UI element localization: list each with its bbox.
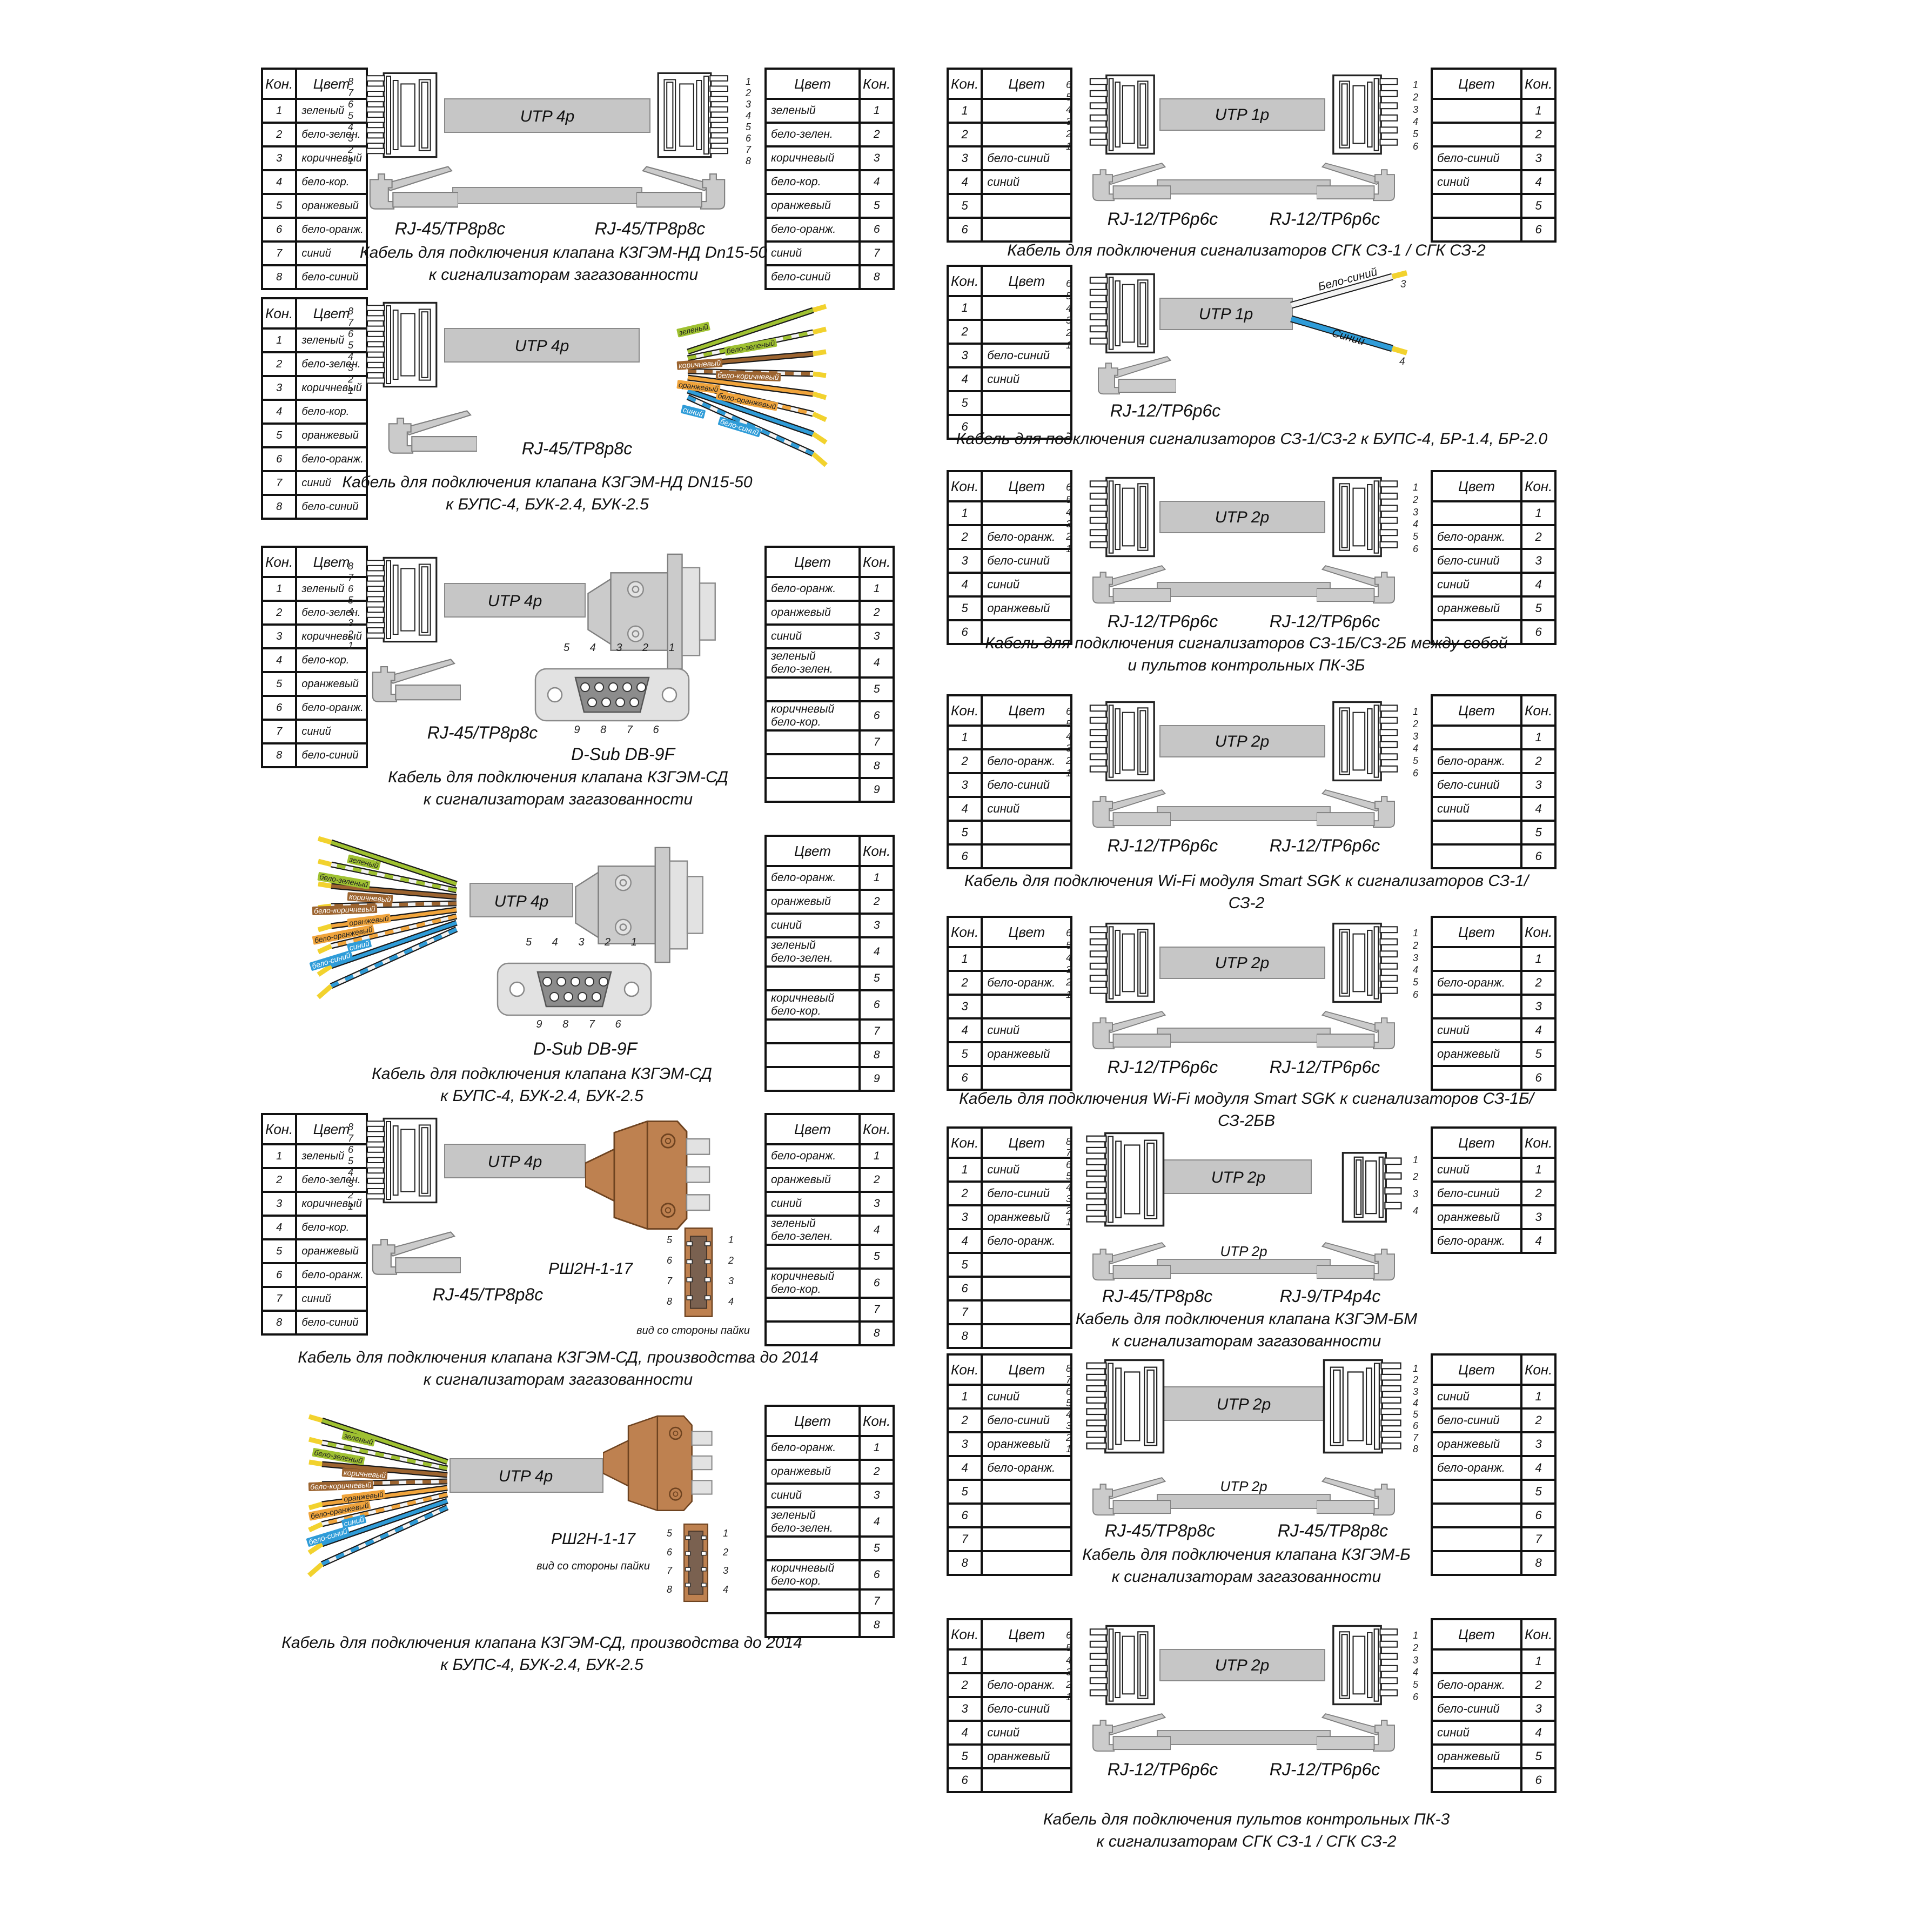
table-row: 5 — [766, 1245, 894, 1269]
pin-callouts-right: 12345678 — [741, 76, 756, 157]
table-row: бело-кор.4 — [766, 170, 894, 194]
pin-number: 1 — [728, 1235, 734, 1246]
table-cell: 5 — [860, 677, 894, 701]
table-cell: оранжевый — [1432, 1432, 1521, 1456]
pin-number: 6 — [1413, 544, 1418, 555]
pin-number: 3 — [1413, 1386, 1418, 1398]
table-row: 3оранжевый — [948, 1205, 1071, 1229]
table-cell: 2 — [1521, 1182, 1555, 1205]
table-cell: 7 — [262, 242, 296, 265]
rj12-plug-icon — [1090, 924, 1154, 1002]
table-cell: 4 — [262, 1216, 296, 1239]
pin-number: 7 — [746, 144, 751, 156]
diagram-caption: Кабель для подключения сигнализаторов СГ… — [947, 239, 1546, 261]
pin-table-left: Кон.Цвет123бело-синий4синий56 — [947, 265, 1072, 440]
table-row: 3бело-синий — [948, 1697, 1071, 1721]
pin-number: 3 — [1413, 1189, 1418, 1200]
table-row: оранжевый2 — [766, 1168, 894, 1192]
rj12-plug-icon — [1090, 478, 1154, 556]
table-row: оранжевый2 — [766, 1460, 894, 1484]
table-cell: бело-оранж. — [766, 1144, 860, 1168]
connector-label: RJ-45/TP8p8c — [396, 723, 569, 743]
connector-label: RJ-12/TP6p6c — [1084, 209, 1241, 229]
table-cell: 2 — [860, 123, 894, 146]
pin-table: ЦветКон.12бело-синий3синий456 — [1431, 68, 1557, 243]
table-cell: 7 — [860, 730, 894, 754]
table-row: синий4 — [1432, 1721, 1555, 1745]
rj45-plug-icon — [658, 73, 728, 157]
table-header-cell: Кон. — [860, 547, 894, 577]
rj12-plug-icon — [1090, 1626, 1154, 1705]
table-cell: 2 — [948, 1673, 982, 1697]
table-row: зеленый1 — [766, 99, 894, 123]
table-cell: 6 — [948, 1504, 982, 1527]
table-row: 1 — [948, 99, 1071, 123]
connector-label: RJ-12/TP6p6c — [1246, 1760, 1403, 1780]
diagram-caption: Кабель для подключения Wi-Fi модуля Smar… — [947, 1088, 1546, 1132]
table-cell — [766, 730, 860, 754]
table-cell: 1 — [948, 99, 982, 123]
table-cell: 1 — [1521, 1385, 1555, 1408]
pin-number: 4 — [1066, 731, 1071, 742]
table-row: 4бело-кор. — [262, 400, 367, 424]
table-row: 5 — [1432, 194, 1555, 218]
table-header-cell: Кон. — [262, 1114, 296, 1144]
rsh-connector-icon — [603, 1416, 712, 1511]
table-cell: 6 — [860, 1560, 894, 1589]
table-cell: 1 — [1521, 501, 1555, 525]
table-header-cell: Цвет — [766, 1114, 860, 1144]
table-cell: 3 — [948, 1205, 982, 1229]
table-cell: 7 — [860, 1589, 894, 1613]
table-cell: синий — [766, 625, 860, 648]
table-row: оранжевый5 — [766, 194, 894, 218]
table-cell: 3 — [948, 549, 982, 573]
connector-label: RJ-9/TP4p4c — [1249, 1286, 1411, 1306]
table-row: бело-оранж.4 — [1432, 1229, 1555, 1253]
cable-icon — [1157, 1028, 1330, 1042]
table-cell: 6 — [948, 844, 982, 868]
table-cell — [982, 947, 1071, 971]
connector-drawing: UTP 1p — [1082, 68, 1406, 207]
pin-number: 7 — [667, 1276, 672, 1287]
table-cell: 1 — [860, 99, 894, 123]
table-header-cell: Цвет — [982, 69, 1071, 99]
pin-table: ЦветКон.бело-оранж.1оранжевый2синий3зеле… — [764, 546, 895, 803]
table-header-cell: Кон. — [948, 69, 982, 99]
table-row: 6 — [948, 1277, 1071, 1300]
table-cell: 2 — [948, 525, 982, 549]
table-header-cell: Кон. — [1521, 69, 1555, 99]
table-cell: бело-оранж. — [1432, 971, 1521, 995]
table-cell — [982, 1504, 1071, 1527]
table-row: зеленый бело-зелен.4 — [766, 1216, 894, 1245]
table-row: бело-оранж.2 — [1432, 1673, 1555, 1697]
cable-icon — [1157, 1730, 1330, 1745]
table-header-cell: Цвет — [982, 266, 1071, 296]
pin-number: 3 — [1066, 743, 1071, 754]
table-cell: синий — [1432, 1158, 1521, 1182]
connector-label: RJ-45/TP8p8c — [1076, 1521, 1244, 1541]
table-header-cell: Кон. — [948, 695, 982, 726]
connector-drawing: UTP 4p — [353, 1113, 763, 1340]
table-cell: 4 — [948, 1721, 982, 1745]
table-cell: коричневый бело-кор. — [766, 1560, 860, 1589]
pin-number: 1 — [1413, 1155, 1418, 1166]
table-cell: 3 — [1521, 1205, 1555, 1229]
table-cell — [1432, 218, 1521, 242]
diagram-L5: Кон.Цвет1зеленый2бело-зелен.3коричневый4… — [261, 1113, 882, 1388]
pin-number: 1 — [1066, 1692, 1071, 1703]
pin-number: 4 — [1413, 1667, 1418, 1678]
pin-number: 3 — [746, 99, 751, 110]
pin-callouts-left: 654321 — [1061, 482, 1076, 555]
pin-number: 2 — [723, 1547, 728, 1558]
table-header-cell: Цвет — [1432, 1128, 1521, 1158]
rj12-plug-icon — [1090, 274, 1154, 353]
table-cell: 2 — [262, 123, 296, 146]
table-cell: бело-синий — [982, 1182, 1071, 1205]
table-row: 1 — [1432, 1649, 1555, 1673]
pin-number: 2 — [746, 88, 751, 99]
table-cell: бело-оранж. — [1432, 1229, 1521, 1253]
svg-text:UTP 4p: UTP 4p — [488, 1153, 542, 1171]
table-row: 1 — [948, 296, 1071, 320]
rj12-plug-icon — [1333, 76, 1397, 154]
table-cell: 8 — [860, 1321, 894, 1345]
table-row: 6 — [948, 1066, 1071, 1090]
table-cell: 6 — [1521, 1768, 1555, 1792]
diagram-caption: Кабель для подключения сигнализаторов СЗ… — [947, 632, 1546, 676]
pin-callouts-right: 123456 — [1408, 706, 1423, 779]
table-cell: 5 — [1521, 1042, 1555, 1066]
diagram-caption: Кабель для подключения клапана КЗГЭМ-СД,… — [272, 1632, 812, 1676]
table-cell: 4 — [1521, 1229, 1555, 1253]
table-cell — [766, 1245, 860, 1269]
table-header-cell: Кон. — [262, 298, 296, 328]
table-row: синий3 — [766, 914, 894, 937]
pin-number: 1 — [1413, 1630, 1418, 1641]
table-header-cell: Цвет — [1432, 1619, 1521, 1649]
table-cell: бело-синий — [982, 1408, 1071, 1432]
table-header-cell: Кон. — [1521, 1619, 1555, 1649]
table-cell: бело-оранж. — [1432, 525, 1521, 549]
table-cell: 6 — [860, 218, 894, 242]
rsh-pin-callouts-right: 1234 — [723, 1235, 739, 1307]
diagram-R5: Кон.Цвет12бело-оранж.34синий5оранжевый6 … — [947, 916, 1546, 1116]
table-cell: 1 — [948, 296, 982, 320]
svg-text:UTP 1p: UTP 1p — [1215, 106, 1270, 124]
pin-number: 6 — [1066, 1386, 1071, 1398]
connector-label: RJ-45/TP8p8c — [1249, 1521, 1417, 1541]
table-header-cell: Цвет — [766, 836, 860, 866]
table-cell: 6 — [860, 701, 894, 730]
table-cell: бело-синий — [1432, 549, 1521, 573]
pin-number: 2 — [1066, 129, 1071, 140]
svg-text:UTP 2p: UTP 2p — [1217, 1396, 1271, 1413]
rsh-pin-callouts-right: 1234 — [718, 1528, 733, 1595]
diagram-caption: Кабель для подключения клапана КЗГЭМ-БМк… — [947, 1308, 1546, 1352]
rj45-plug-icon — [1324, 1360, 1401, 1452]
table-cell: 3 — [948, 146, 982, 170]
diagram-caption: Кабель для подключения пультов контрольн… — [947, 1808, 1546, 1853]
table-cell: 9 — [860, 778, 894, 802]
table-header-cell: Цвет — [766, 1406, 860, 1436]
pin-number: 3 — [728, 1276, 734, 1287]
table-row: 7синий — [262, 720, 367, 743]
table-row: 7синий — [262, 1287, 367, 1311]
table-row: оранжевый2 — [766, 890, 894, 914]
table-row: 3бело-синий — [948, 344, 1071, 367]
svg-text:UTP 2p: UTP 2p — [1215, 733, 1270, 750]
pin-number: 6 — [1066, 706, 1071, 717]
table-row: 6 — [1432, 1066, 1555, 1090]
table-row: синий4 — [1432, 1018, 1555, 1042]
table-row: 1синий — [948, 1385, 1071, 1408]
table-cell: 1 — [860, 1436, 894, 1460]
table-cell: 3 — [948, 1697, 982, 1721]
connector-drawing: UTP 4p — [353, 68, 742, 214]
table-cell: 3 — [262, 625, 296, 648]
pin-table-right: ЦветКон.1бело-оранж.23синий4оранжевый56 — [1431, 916, 1557, 1091]
pin-number: 1 — [1413, 706, 1418, 717]
table-row: 2 — [948, 123, 1071, 146]
table-header-cell: Цвет — [1432, 695, 1521, 726]
table-header-cell: Кон. — [860, 1406, 894, 1436]
table-cell: 5 — [1521, 1745, 1555, 1768]
pin-number: 5 — [746, 122, 751, 133]
table-row: 6бело-оранж. — [262, 1263, 367, 1287]
table-cell: бело-синий — [1432, 1182, 1521, 1205]
dsub-pin-numbers-bottom: 9 8 7 6 — [534, 1018, 632, 1031]
pin-number: 2 — [728, 1255, 734, 1266]
table-cell: бело-синий — [1432, 773, 1521, 797]
table-cell — [982, 1768, 1071, 1792]
pin-table: ЦветКон.синий1бело-синий2оранжевый3бело-… — [1431, 1126, 1557, 1254]
connector-drawing: UTP 2p UTP 2p — [1082, 1353, 1406, 1518]
table-cell: 3 — [860, 914, 894, 937]
table-cell: бело-оранж. — [1432, 1673, 1521, 1697]
pin-number: 2 — [1066, 977, 1071, 988]
table-cell: 4 — [948, 1456, 982, 1480]
pin-table-right: ЦветКон.бело-оранж.1оранжевый2синий3зеле… — [764, 546, 895, 803]
pin-number: 4 — [1066, 952, 1071, 964]
svg-text:UTP 2p: UTP 2p — [1220, 1243, 1267, 1259]
pin-number: 6 — [1413, 1692, 1418, 1703]
pin-table-right: ЦветКон.12бело-синий3синий456 — [1431, 68, 1557, 243]
table-row: бело-оранж.1 — [766, 866, 894, 890]
table-cell: синий — [982, 1721, 1071, 1745]
table-header-cell: Кон. — [948, 471, 982, 501]
pin-table-right: ЦветКон.синий1бело-синий2оранжевый3бело-… — [1431, 1353, 1557, 1576]
table-row: 3бело-синий — [948, 549, 1071, 573]
table-cell: 6 — [860, 1269, 894, 1298]
pin-number: 6 — [1066, 928, 1071, 939]
pin-table-left: Кон.Цвет12бело-оранж.3бело-синий4синий5о… — [947, 470, 1072, 645]
table-cell: 8 — [860, 1613, 894, 1637]
table-cell: 3 — [948, 344, 982, 367]
table-cell: бело-оранж. — [766, 866, 860, 890]
table-cell: бело-кор. — [766, 170, 860, 194]
table-cell: оранжевый — [982, 1432, 1071, 1456]
table-cell: бело-синий — [1432, 146, 1521, 170]
table-cell: 5 — [948, 1042, 982, 1066]
table-cell: 5 — [948, 596, 982, 620]
table-cell: 5 — [1521, 194, 1555, 218]
pin-number: 3 — [1066, 116, 1071, 128]
table-cell: зеленый бело-зелен. — [766, 937, 860, 967]
connector-label: D-Sub DB-9F — [504, 1039, 666, 1059]
pin-number: 4 — [1066, 104, 1071, 116]
pin-table: Кон.Цвет123бело-синий4синий56 — [947, 68, 1072, 243]
diagram-L3: Кон.Цвет1зеленый2бело-зелен.3коричневый4… — [261, 546, 882, 816]
pin-number: 4 — [1066, 1655, 1071, 1666]
pin-number: 5 — [1066, 1171, 1071, 1182]
rj-latch-icon — [1098, 357, 1176, 394]
table-cell: 3 — [262, 376, 296, 400]
table-row: 2бело-оранж. — [948, 971, 1071, 995]
table-row: 2 — [1432, 123, 1555, 146]
svg-text:Синий: Синий — [1331, 327, 1366, 348]
table-cell: 2 — [1521, 749, 1555, 773]
table-cell: зеленый бело-зелен. — [766, 1507, 860, 1537]
diagram-caption: Кабель для подключения сигнализаторов СЗ… — [947, 428, 1557, 450]
table-cell: 1 — [1521, 726, 1555, 749]
table-row: 6 — [1432, 1768, 1555, 1792]
table-cell: 6 — [948, 1277, 982, 1300]
pin-number: 5 — [667, 1235, 672, 1246]
rj9-plug-icon — [1343, 1153, 1401, 1222]
table-cell — [766, 1321, 860, 1345]
table-cell — [982, 1253, 1071, 1277]
svg-text:UTP 2p: UTP 2p — [1215, 954, 1270, 972]
table-cell: 3 — [262, 146, 296, 170]
pin-table: ЦветКон.1бело-оранж.2бело-синий3синий456 — [1431, 694, 1557, 869]
table-row: 4синий — [948, 797, 1071, 821]
table-cell: синий — [982, 1018, 1071, 1042]
table-cell: 7 — [262, 720, 296, 743]
pin-number: 6 — [1066, 482, 1071, 493]
pin-number: 3 — [1413, 1655, 1418, 1666]
pin-callouts-left: 654321 — [1061, 278, 1076, 351]
pin-number: 8 — [1066, 1136, 1071, 1148]
pin-callouts-left: 654321 — [1061, 928, 1076, 1001]
table-row: синий4 — [1432, 170, 1555, 194]
table-row: 4бело-кор. — [262, 170, 367, 194]
table-cell — [766, 1298, 860, 1321]
rsh-note: вид со стороны пайки — [520, 1560, 666, 1573]
connector-drawing: UTP 2p — [1082, 916, 1406, 1055]
table-cell: синий — [1432, 170, 1521, 194]
diagram-L6: UTP 4p зеленый бело-зеленый коричневый б… — [261, 1405, 882, 1680]
table-row: 6бело-оранж. — [262, 447, 367, 471]
connector-label: RJ-45/TP8p8c — [558, 219, 742, 239]
pin-table-left: Кон.Цвет123бело-синий4синий56 — [947, 68, 1072, 243]
table-cell: бело-оранж. — [982, 1673, 1071, 1697]
table-cell: 3 — [860, 625, 894, 648]
wiring-diagrams-page: Кон.Цвет1зеленый2бело-зелен.3коричневый4… — [0, 0, 1932, 1932]
table-row: 5 — [1432, 1480, 1555, 1504]
table-row: 2бело-оранж. — [948, 749, 1071, 773]
table-cell: 3 — [1521, 773, 1555, 797]
table-cell: 3 — [948, 1432, 982, 1456]
pin-number: 4 — [1066, 1409, 1071, 1420]
table-cell: синий — [1432, 797, 1521, 821]
table-cell: 9 — [860, 1067, 894, 1091]
table-row: коричневый бело-кор.6 — [766, 1560, 894, 1589]
pin-number: 1 — [1066, 340, 1071, 351]
pin-table: ЦветКон.1бело-оранж.23синий4оранжевый56 — [1431, 916, 1557, 1091]
table-row: 5 — [948, 391, 1071, 415]
table-cell: 6 — [262, 1263, 296, 1287]
table-cell: 5 — [860, 1537, 894, 1560]
table-cell: 4 — [860, 937, 894, 967]
connector-label: RJ-45/TP8p8c — [1071, 1286, 1244, 1306]
table-header-cell: Цвет — [982, 695, 1071, 726]
table-cell: 1 — [948, 947, 982, 971]
table-row: синий3 — [766, 1484, 894, 1507]
rj45-plug-icon — [1086, 1360, 1163, 1452]
pin-number: 4 — [1413, 116, 1418, 128]
pin-number: 3 — [1066, 519, 1071, 530]
table-cell: бело-синий — [982, 1697, 1071, 1721]
dsub-pin-numbers-top: 5 4 3 2 1 — [526, 936, 645, 949]
pin-number: 1 — [1066, 1444, 1071, 1455]
table-row: бело-оранж.6 — [766, 218, 894, 242]
table-cell — [982, 218, 1071, 242]
table-cell: бело-синий — [982, 344, 1071, 367]
table-cell: 4 — [860, 1216, 894, 1245]
pin-callouts-right: 123456 — [1408, 79, 1423, 152]
table-cell: 2 — [1521, 525, 1555, 549]
table-row: оранжевый5 — [1432, 1745, 1555, 1768]
table-row: 6 — [1432, 1504, 1555, 1527]
table-cell: 6 — [262, 447, 296, 471]
table-header-cell: Кон. — [262, 69, 296, 99]
table-row: 4синий — [948, 573, 1071, 596]
table-row: бело-оранж.2 — [1432, 525, 1555, 549]
table-row: бело-оранж.1 — [766, 1436, 894, 1460]
pin-number: 5 — [1413, 129, 1418, 140]
pin-number: 5 — [1413, 755, 1418, 767]
table-row: 5оранжевый — [262, 1239, 367, 1263]
table-row: 6 — [948, 1768, 1071, 1792]
table-cell — [982, 1480, 1071, 1504]
table-cell: 3 — [1521, 549, 1555, 573]
table-cell: 2 — [1521, 1673, 1555, 1697]
table-cell: коричневый бело-кор. — [766, 701, 860, 730]
table-cell: зеленый бело-зелен. — [766, 648, 860, 677]
table-cell: 1 — [948, 726, 982, 749]
table-row: 7 — [766, 730, 894, 754]
table-cell: 5 — [1521, 1480, 1555, 1504]
table-cell: бело-оранж. — [1432, 1456, 1521, 1480]
pin-table: ЦветКон.синий1бело-синий2оранжевый3бело-… — [1431, 1353, 1557, 1576]
table-cell: оранжевый — [982, 1205, 1071, 1229]
connector-drawing: UTP 2p — [1082, 470, 1406, 609]
pin-number: 4 — [1413, 519, 1418, 530]
pin-number: 4 — [723, 1584, 728, 1595]
pin-number: 8 — [667, 1584, 672, 1595]
pin-table: ЦветКон.бело-оранж.1оранжевый2синий3зеле… — [764, 1113, 895, 1346]
table-cell — [1432, 123, 1521, 146]
table-row: 1 — [1432, 726, 1555, 749]
table-cell — [982, 995, 1071, 1018]
rj45-plug-icon — [367, 303, 437, 386]
table-cell: бело-оранж. — [1432, 749, 1521, 773]
connector-label: RJ-45/TP8p8c — [488, 439, 666, 459]
table-cell: 1 — [860, 1144, 894, 1168]
